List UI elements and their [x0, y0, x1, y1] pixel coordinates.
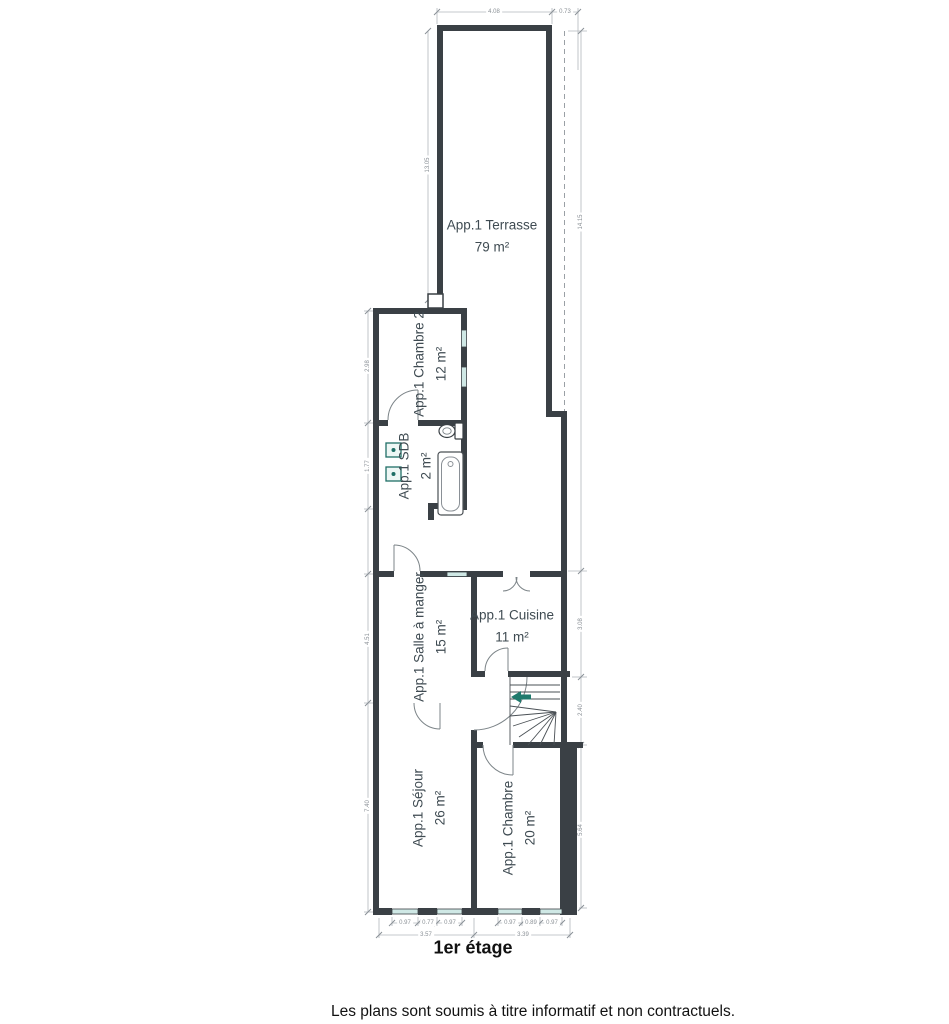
room-name: App.1 Salle à manger — [413, 572, 428, 702]
floor-title: 1er étage — [433, 938, 512, 959]
stairs-direction-arrow-icon — [511, 691, 531, 703]
window-chambre-b — [540, 909, 562, 914]
dim-left-dining: 4.51 — [365, 631, 371, 647]
room-name: App.1 Séjour — [412, 769, 427, 847]
dim-window-chambre-c: 0.97 — [544, 920, 560, 926]
window-sejour-b — [437, 909, 462, 914]
room-label-cuisine: App.1 Cuisine 11 m² — [470, 609, 554, 646]
room-area: 20 m² — [524, 811, 539, 846]
dim-right-kitchen: 3.08 — [578, 616, 584, 632]
room-label-chambre2: App.1 Chambre 2 12 m² — [413, 311, 450, 417]
room-name: App.1 Chambre — [502, 781, 517, 876]
dim-window-chambre-a: 0.97 — [502, 920, 518, 926]
room-name: App.1 Terrasse — [447, 219, 538, 234]
room-label-terrasse: App.1 Terrasse 79 m² — [447, 219, 538, 256]
door-arc-kitchen-hall — [485, 648, 508, 671]
dim-window-sejour-c: 0.97 — [442, 920, 458, 926]
door-arc-sejour — [414, 703, 440, 729]
room-label-salle-a-manger: App.1 Salle à manger 15 m² — [413, 572, 450, 702]
door-arc-kitchen-double-right — [516, 577, 530, 591]
footer-disclaimer: Les plans sont soumis à titre informatif… — [331, 1003, 735, 1021]
door-arc-dining-landing — [394, 545, 420, 571]
room-area: 26 m² — [434, 791, 449, 826]
dim-top-offset: 0.73 — [557, 9, 573, 15]
window-chambre2-a — [462, 330, 467, 347]
window-sejour-a — [392, 909, 418, 914]
room-area: 79 m² — [475, 241, 510, 256]
dim-top-terrace: 4.08 — [486, 9, 502, 15]
room-name: App.1 Chambre 2 — [413, 311, 428, 417]
room-label-sejour: App.1 Séjour 26 m² — [412, 769, 449, 847]
room-area: 12 m² — [435, 347, 450, 382]
room-area: 15 m² — [435, 620, 450, 655]
floor-plan: App.1 Terrasse 79 m² App.1 Chambre 2 12 … — [0, 0, 949, 1024]
wall-junction — [428, 294, 443, 308]
toilet-icon — [439, 423, 463, 439]
dim-window-chambre-b: 0.89 — [523, 920, 539, 926]
stairs — [510, 677, 560, 745]
room-area: 2 m² — [420, 453, 435, 480]
floor-plan-drawing — [0, 0, 949, 1024]
room-label-chambre: App.1 Chambre 20 m² — [502, 781, 539, 876]
dim-window-sejour-b: 0.77 — [420, 920, 436, 926]
dim-left-sejour: 7.40 — [365, 798, 371, 814]
room-area: 11 m² — [495, 631, 529, 646]
dim-right-terrace: 14.15 — [578, 212, 584, 231]
dim-terrace-left: 13.05 — [425, 155, 431, 174]
dim-right-chambre: 5.64 — [578, 822, 584, 838]
dim-bottom-sejour: 3.57 — [418, 932, 434, 938]
dim-bottom-chambre: 3.39 — [515, 932, 531, 938]
window-chambre2-b — [462, 367, 467, 387]
room-name: App.1 Cuisine — [470, 609, 554, 624]
dim-right-stairs: 2.40 — [578, 702, 584, 718]
dim-left-chambre2: 2.98 — [365, 358, 371, 374]
room-name: App.1 SDB — [398, 433, 413, 500]
door-arc-chambre — [483, 745, 513, 775]
door-arc-kitchen-double-left — [503, 577, 517, 591]
dim-left-sdb: 1.77 — [365, 458, 371, 474]
dim-window-sejour-a: 0.97 — [397, 920, 413, 926]
bathtub-icon — [438, 452, 463, 515]
window-chambre-a — [498, 909, 522, 914]
window-dining — [447, 572, 467, 577]
room-label-sdb: App.1 SDB 2 m² — [398, 433, 435, 500]
